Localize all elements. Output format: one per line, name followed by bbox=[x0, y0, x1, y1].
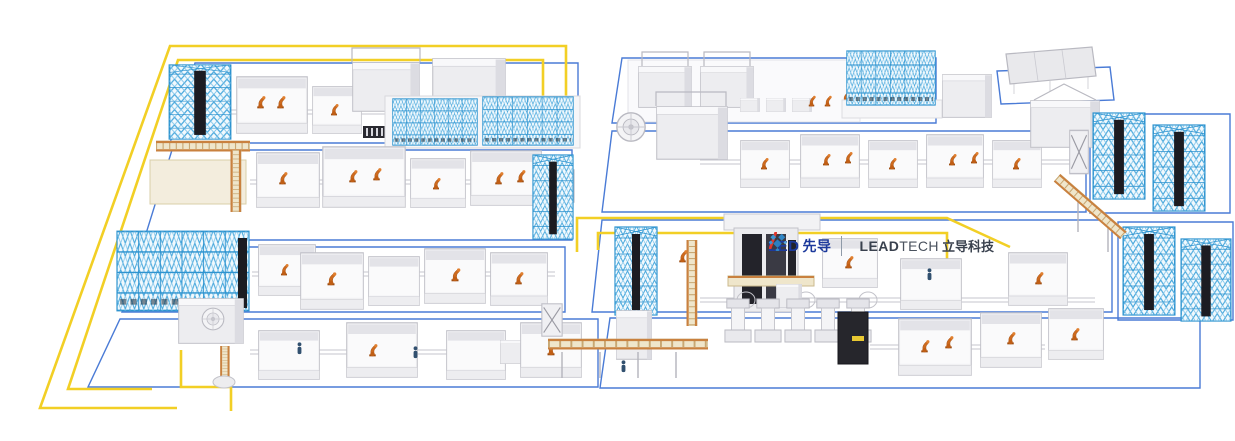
machine-cell bbox=[259, 331, 320, 380]
storage-rack bbox=[1093, 113, 1145, 199]
lead-cn: 先导 bbox=[803, 239, 832, 253]
machine-cell bbox=[471, 151, 542, 205]
storage-tower bbox=[615, 227, 657, 315]
warning-tag bbox=[852, 336, 864, 341]
brand-logo: LE D 先导 LEADTECH 立导科技 bbox=[768, 232, 994, 260]
lift-tower bbox=[1070, 130, 1089, 173]
conveyor-segment bbox=[687, 240, 697, 326]
left-island bbox=[117, 48, 581, 388]
factory-line-render: LE D 先导 LEADTECH 立导科技 bbox=[0, 0, 1235, 441]
machine-cell bbox=[347, 323, 418, 377]
display-panel bbox=[1006, 47, 1096, 84]
leadtech-wordmark: LEADTECH 立导科技 bbox=[860, 239, 994, 253]
storage-rack bbox=[1181, 239, 1231, 321]
conveyor-bridge bbox=[548, 339, 708, 349]
storage-tower bbox=[533, 155, 573, 239]
machine-block bbox=[657, 107, 728, 159]
machine-cell bbox=[901, 259, 962, 310]
factory-scene bbox=[0, 0, 1235, 441]
machine-cell bbox=[801, 135, 860, 187]
storage-rack bbox=[1153, 125, 1205, 211]
leadtech-cn: 立导科技 bbox=[942, 240, 994, 253]
machine-cell bbox=[369, 257, 420, 306]
machine-block bbox=[766, 98, 786, 112]
conveyor-segment bbox=[156, 141, 250, 151]
machine-cell bbox=[257, 153, 320, 207]
storage-rack bbox=[847, 51, 936, 105]
storage-rack bbox=[169, 65, 230, 139]
conveyor-segment bbox=[231, 150, 241, 212]
machine-block bbox=[740, 98, 760, 112]
machine-cell bbox=[323, 147, 405, 207]
turntable bbox=[213, 376, 235, 388]
machine-block bbox=[943, 75, 992, 118]
lead-post: D bbox=[788, 239, 799, 254]
right-island bbox=[615, 47, 1231, 375]
rotary-table bbox=[617, 113, 645, 141]
machine-block bbox=[616, 311, 651, 360]
stacker-crane-mast bbox=[238, 238, 247, 308]
gantry-machine bbox=[1031, 101, 1100, 148]
press-machine bbox=[815, 299, 841, 342]
rotary-table bbox=[202, 308, 224, 330]
press-machine bbox=[725, 299, 751, 342]
operator-figure bbox=[622, 360, 626, 372]
machine-cell bbox=[447, 331, 506, 380]
gantry-machine bbox=[639, 67, 692, 108]
machine-cell bbox=[899, 319, 972, 375]
scissor-lift bbox=[542, 304, 562, 336]
operator-figure bbox=[298, 342, 302, 354]
press-machine bbox=[755, 299, 781, 342]
machine-cell bbox=[237, 77, 308, 133]
storage-rack bbox=[393, 99, 478, 145]
leadtech-regular: TECH bbox=[899, 239, 939, 253]
robot-arm-icon bbox=[679, 250, 687, 262]
operator-figure bbox=[414, 346, 418, 358]
operator-figure bbox=[928, 268, 932, 280]
leadtech-bold: LEAD bbox=[860, 239, 900, 253]
storage-rack bbox=[1123, 227, 1175, 315]
storage-rack bbox=[483, 97, 574, 145]
press-machine bbox=[785, 299, 811, 342]
logo-divider bbox=[841, 236, 842, 256]
